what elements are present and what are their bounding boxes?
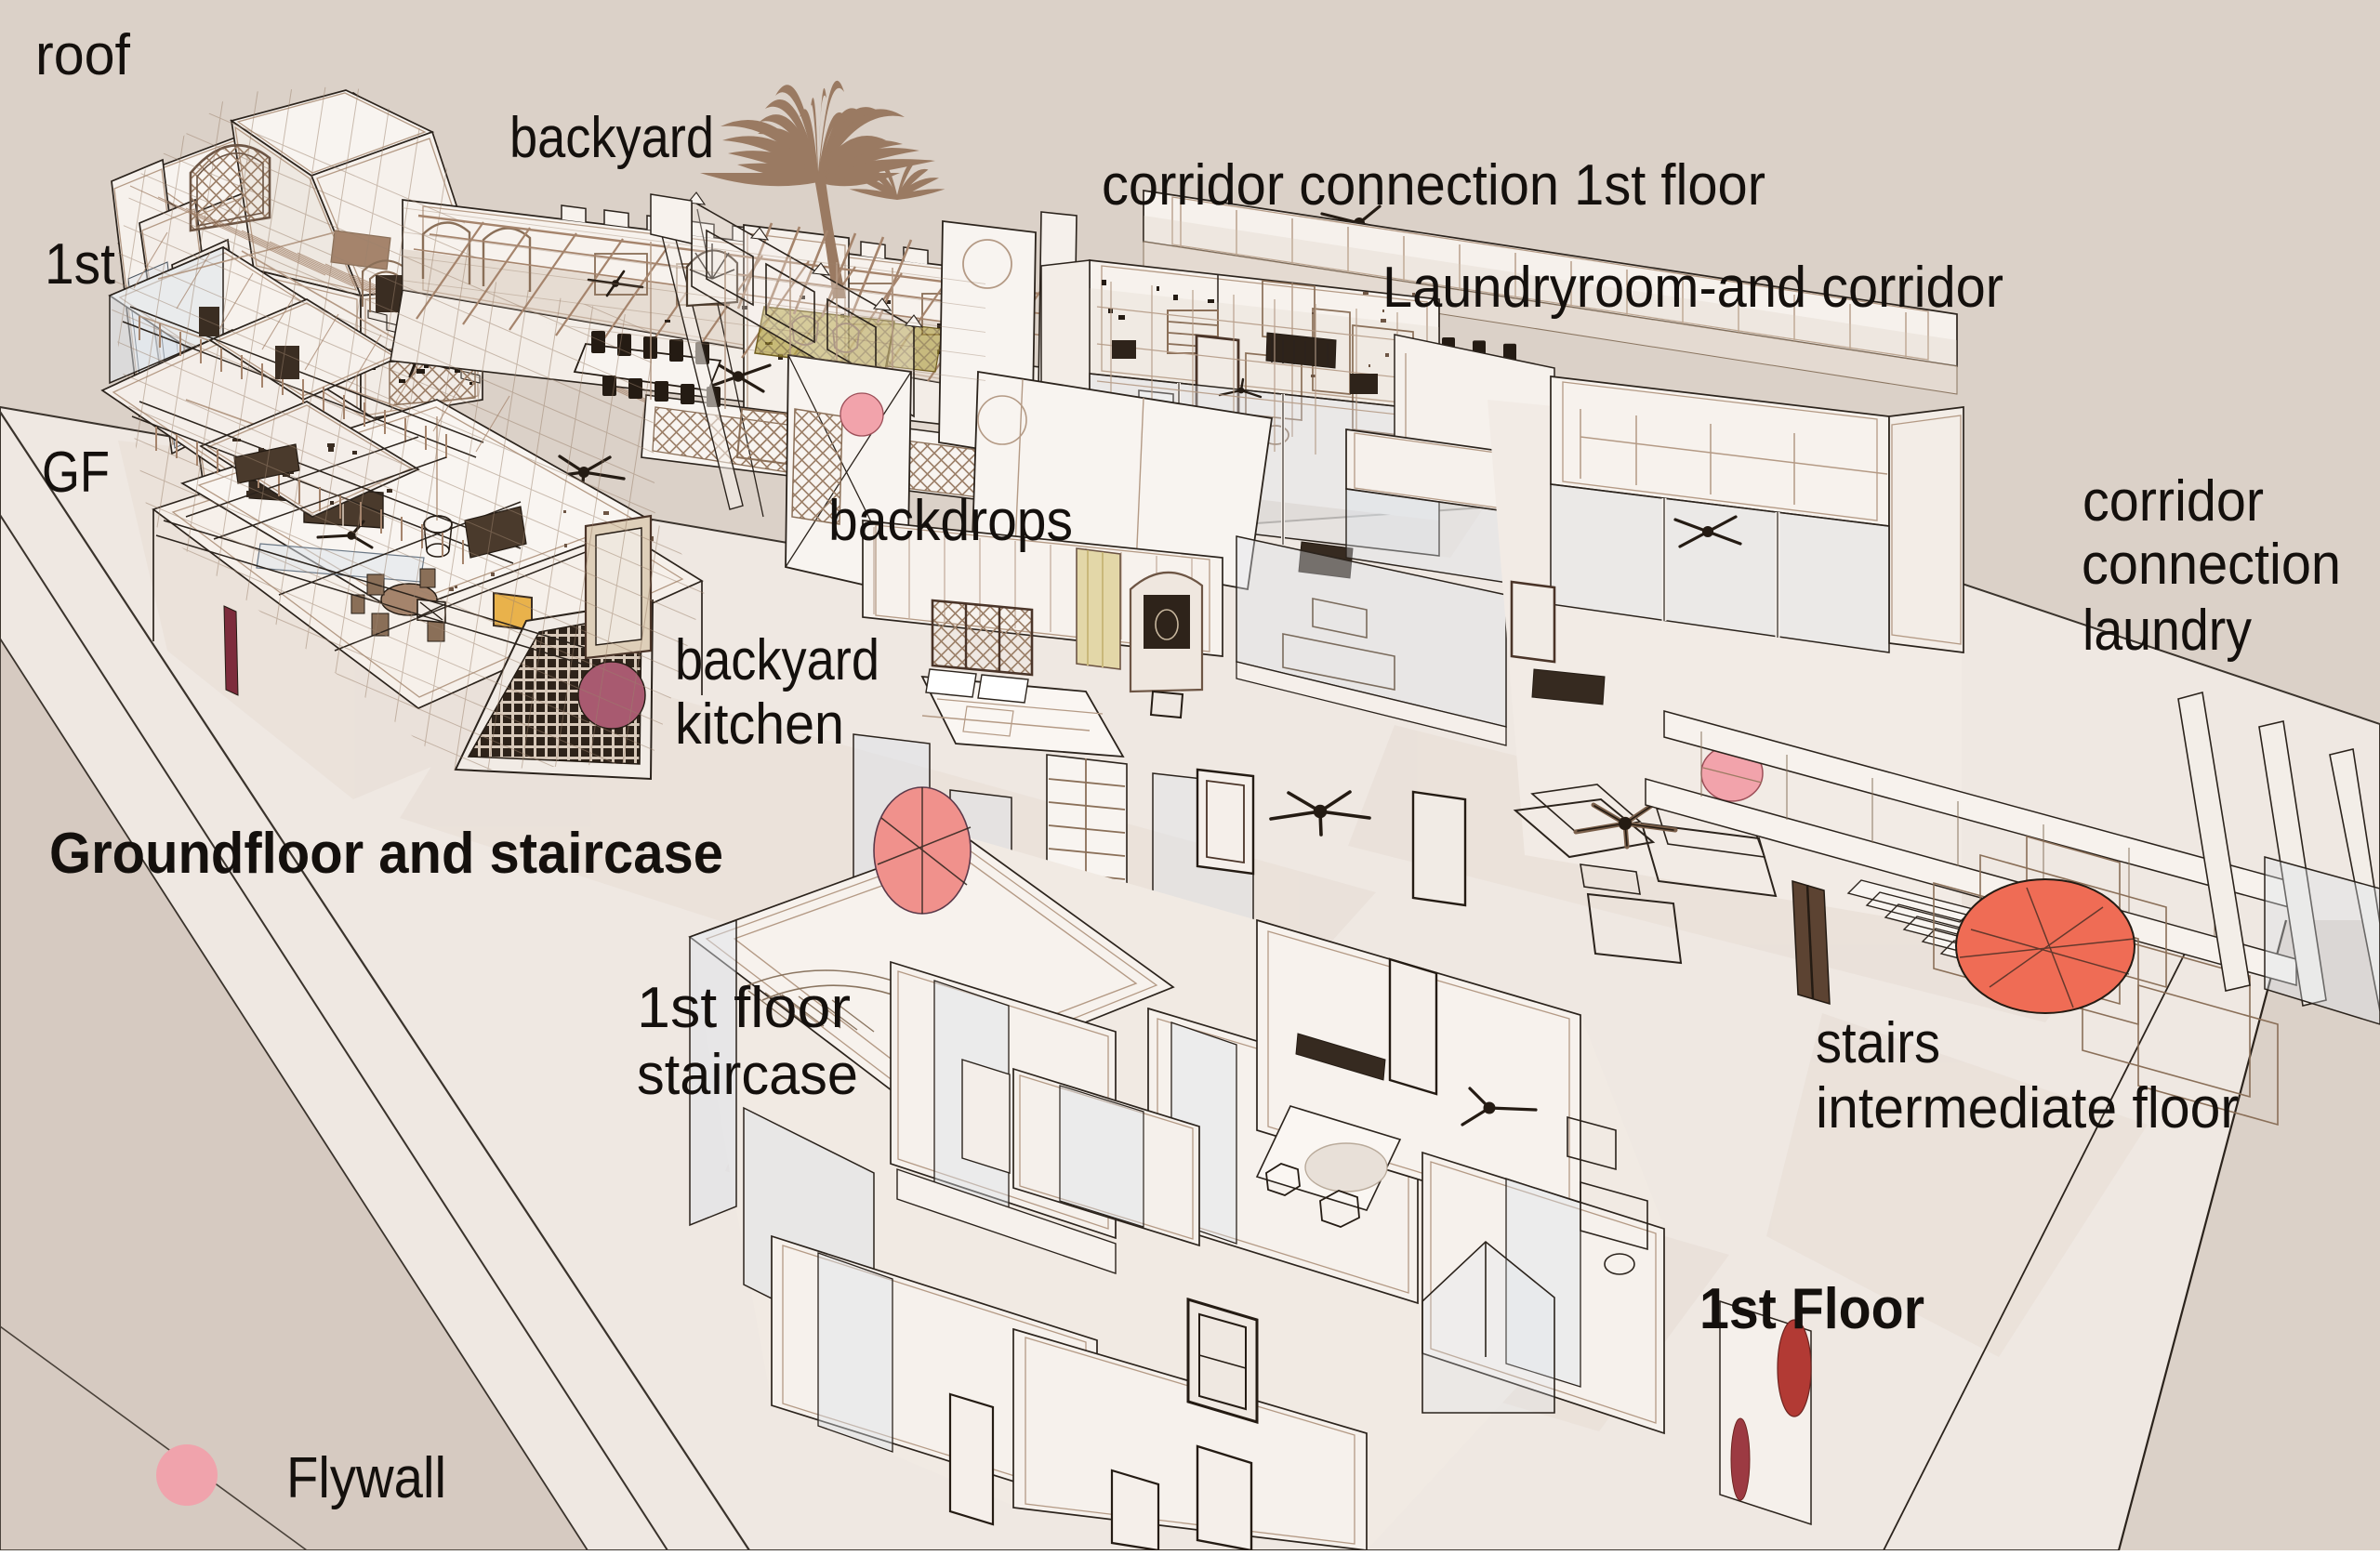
svg-text:Laundryroom-and corridor: Laundryroom-and corridor: [1382, 256, 2003, 320]
svg-text:backdrops: backdrops: [828, 489, 1073, 553]
svg-text:Flywall: Flywall: [286, 1446, 446, 1510]
svg-text:corridor connection 1st floor: corridor connection 1st floor: [1102, 153, 1765, 217]
svg-text:1st Floor: 1st Floor: [1699, 1277, 1924, 1341]
svg-text:backyard: backyard: [509, 106, 714, 170]
svg-text:connection: connection: [2082, 533, 2341, 597]
svg-text:Groundfloor and staircase: Groundfloor and staircase: [49, 822, 723, 886]
svg-text:staircase: staircase: [637, 1043, 858, 1107]
svg-text:roof: roof: [35, 23, 131, 87]
svg-text:1st floor: 1st floor: [637, 976, 851, 1040]
svg-text:stairs: stairs: [1816, 1011, 1940, 1075]
svg-text:kitchen: kitchen: [675, 692, 844, 757]
svg-text:intermediate floor: intermediate floor: [1816, 1076, 2239, 1140]
svg-text:1st: 1st: [45, 232, 115, 297]
svg-text:laundry: laundry: [2082, 599, 2252, 663]
svg-text:corridor: corridor: [2082, 469, 2264, 534]
svg-text:GF: GF: [42, 441, 110, 505]
svg-text:backyard: backyard: [675, 628, 879, 692]
